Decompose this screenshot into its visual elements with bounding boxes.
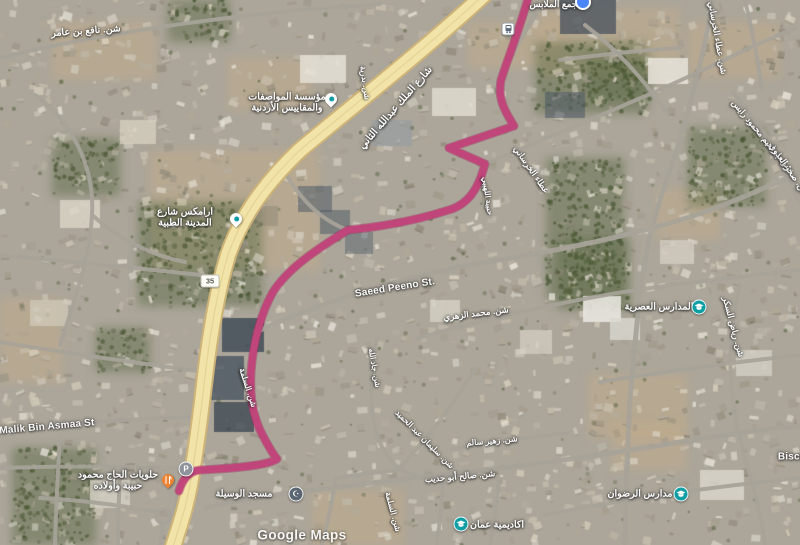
poi-jsmo-label[interactable]: مؤسسة المواصفاتوالمقاييس الأردنية [248,92,325,113]
street-label-ataa-khursani-mid: عطاء الخرساني [511,145,551,196]
street-label-salma-2: شن. السلمة [382,491,401,533]
street-label-jadallah: شن. جاد الله [366,348,381,388]
pin-generic-poi-jsmo[interactable] [324,91,338,107]
street-label-suleiman-abd: شن. سليمان عبد الحميد [393,409,455,471]
street-label-salma-1: شن. السلمة [236,367,257,408]
street-label-zuhair-salem: شن. زهير سالم [466,435,518,448]
map-canvas[interactable]: شن. نافع بن عامرشارع الملك عبدالله الثان… [0,0,800,545]
circle-mosque-poi-masjid-al-wasila[interactable]: ☪ [289,487,304,502]
poi-modern-schools-label[interactable]: المدارس العصرية [625,303,694,314]
street-label-nafi-bin-amer: شن. نافع بن عامر [51,24,121,39]
bus-stop-icon[interactable] [502,23,515,36]
circle-school-poi-radwan-schools[interactable] [674,487,689,502]
street-label-sakhr-adawi: شن. صخر العدوي [767,142,800,199]
poi-aramex-medical-city-label[interactable]: ارامكس شارعالمدينة الطبية [157,207,213,228]
street-label-riyad-sukkar: شن. رياض السكر [720,296,745,358]
street-label-biscu: Biscu [778,451,800,462]
route-shield-35: 35 [201,275,220,288]
dot-blue-poi-majmaa[interactable] [575,0,591,10]
street-label-ataa-khursani-top: شن. عطاء الخرساني [706,1,728,75]
poi-halawiyat-hajj-mahmoud-label[interactable]: حلويات الحاج محمودحبيبة وأولاده [78,470,158,491]
street-label-badriya: شن. بدرية [357,66,371,101]
poi-amman-academy-label[interactable]: اكاديمية عمان [470,521,524,532]
parking-icon[interactable]: P [179,462,194,477]
street-label-saeed-peeno: Saeed Peeno St. [354,276,436,300]
pin-restaurant-poi-halawiyat-hajj-mahmoud[interactable] [161,472,175,488]
street-label-mohammad-zuhri: شن. محمد الزهري [443,305,509,322]
poi-radwan-schools-label[interactable]: مدارس الرضوان [608,490,673,501]
street-label-habiba: حبيبة اللهيبي [480,176,494,215]
pin-generic-poi-aramex-medical-city[interactable] [229,211,243,227]
google-maps-watermark[interactable]: Google Maps [257,528,346,543]
poi-masjid-al-wasila-label[interactable]: مسجد الوسيلة [216,490,273,501]
circle-school-poi-modern-schools[interactable] [692,300,707,315]
circle-school-poi-amman-academy[interactable] [454,517,469,532]
street-label-malik-bin-asmaa: Malik Bin Asmaa St [0,417,95,436]
street-label-saleh-abu-hudaib: شن. صالح أبو حديب [424,469,495,485]
map-labels-layer: شن. نافع بن عامرشارع الملك عبدالله الثان… [0,0,800,545]
